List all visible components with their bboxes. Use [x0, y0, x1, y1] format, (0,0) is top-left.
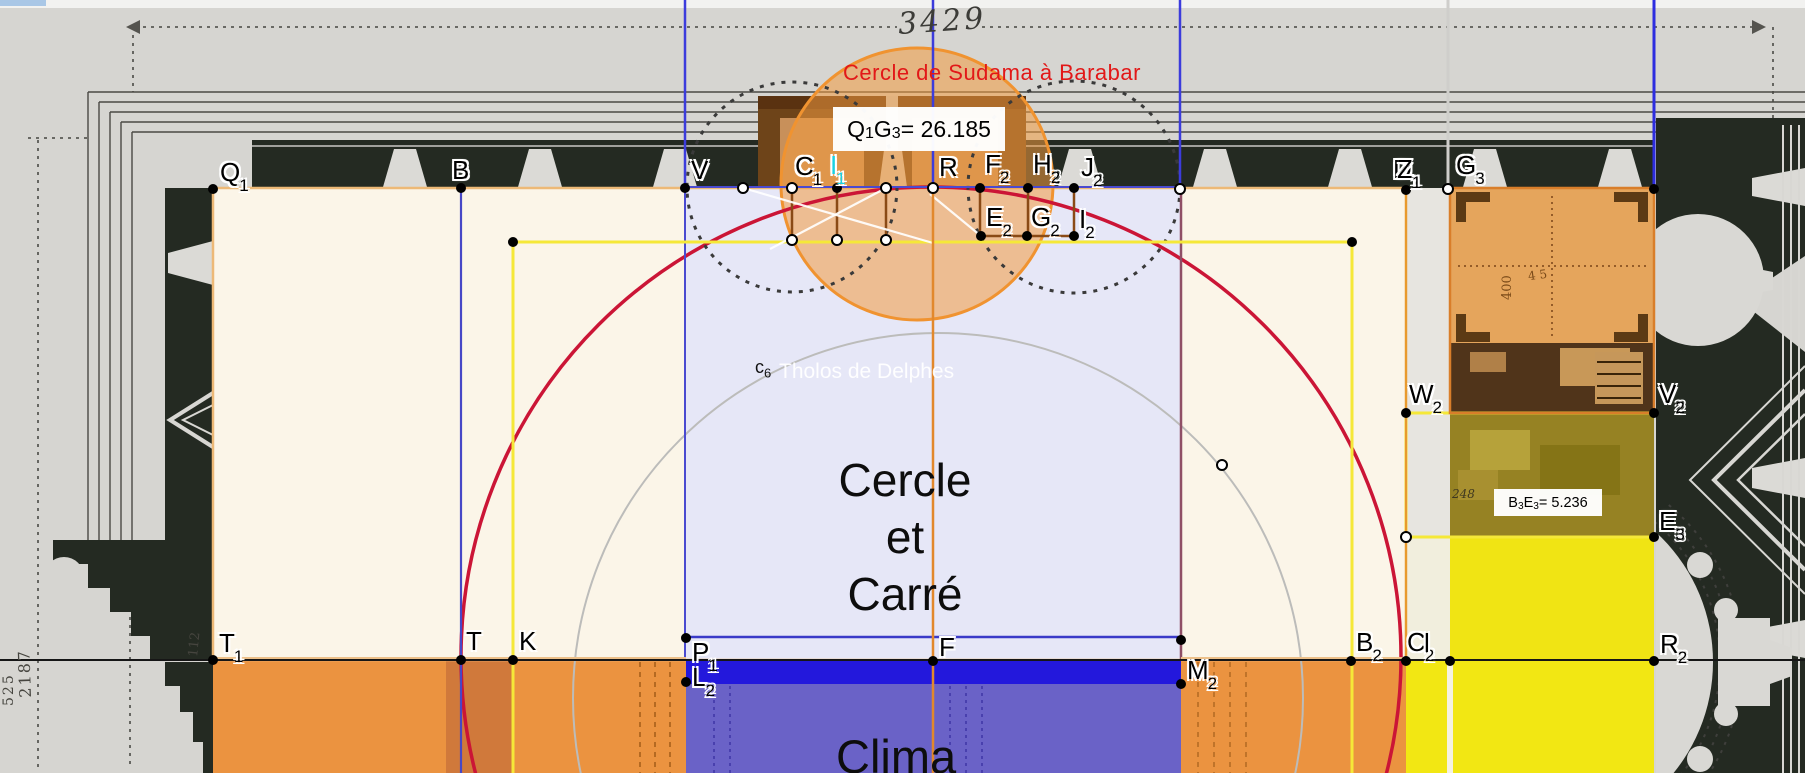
plan-dim-525: 525: [1, 673, 17, 706]
point-y837[interactable]: [831, 234, 843, 246]
point-label-C1: C1: [795, 153, 823, 184]
point-label-V: V: [691, 157, 708, 183]
point-label-I2: I2: [1079, 206, 1096, 237]
plan-dim-3429: 3429: [897, 1, 988, 42]
point-E3[interactable]: [1649, 532, 1659, 542]
point-F[interactable]: [928, 656, 938, 666]
point-label-B: B: [452, 157, 469, 183]
measurement-q1g3-box[interactable]: Q1G3 = 26.185: [833, 107, 1005, 151]
point-d1450[interactable]: [1445, 656, 1455, 666]
point-label-F: F: [939, 634, 955, 660]
point-H2[interactable]: [1023, 183, 1033, 193]
center-square-caption: Cercle et Carré: [770, 452, 1040, 623]
point-oc6[interactable]: [1216, 459, 1228, 471]
plan-dim-45: 4 5: [1527, 267, 1548, 284]
point-P1[interactable]: [681, 633, 691, 643]
point-label-R: R: [939, 154, 958, 180]
point-label-I1: I1: [830, 152, 847, 183]
point-M2[interactable]: [1176, 679, 1186, 689]
plan-dim-248: 248: [1452, 487, 1475, 501]
point-o1406[interactable]: [1400, 531, 1412, 543]
point-Q1[interactable]: [208, 184, 218, 194]
point-label-L2: L2: [692, 664, 716, 695]
sudama-circle-title: Cercle de Sudama à Barabar: [843, 60, 1141, 86]
point-p1180[interactable]: [1174, 183, 1186, 195]
point-label-E3: E3: [1659, 508, 1686, 539]
point-J2[interactable]: [1069, 183, 1079, 193]
point-label-Q1: Q1: [220, 159, 250, 190]
point-label-T1: T1: [219, 630, 244, 661]
point-G3[interactable]: [1442, 183, 1454, 195]
yellow-bottom-right[interactable]: [1406, 660, 1654, 773]
point-F2[interactable]: [975, 183, 985, 193]
browser-artifact: [0, 0, 46, 6]
point-label-F2: F2: [985, 151, 1010, 182]
point-m1181[interactable]: [1176, 635, 1186, 645]
point-label-R2: R2: [1660, 631, 1688, 662]
point-I2[interactable]: [1069, 231, 1079, 241]
point-p743[interactable]: [737, 182, 749, 194]
point-y886[interactable]: [880, 234, 892, 246]
point-label-J2: J2: [1081, 154, 1103, 185]
point-E2[interactable]: [976, 231, 986, 241]
point-label-K: K: [519, 628, 536, 654]
point-label-E2: E2: [986, 204, 1013, 235]
point-V[interactable]: [680, 183, 690, 193]
point-yTL[interactable]: [508, 237, 518, 247]
point-label-C2: C2: [1407, 629, 1435, 660]
plan-dim-112: 112: [186, 631, 204, 657]
point-label-M2: M2: [1187, 657, 1218, 688]
point-T1[interactable]: [208, 655, 218, 665]
point-K[interactable]: [508, 655, 518, 665]
plan-dim-400: 400: [1500, 275, 1515, 300]
point-T[interactable]: [456, 655, 466, 665]
measurement-b3e3-box[interactable]: B3E3 = 5.236: [1494, 489, 1602, 516]
point-c1654[interactable]: [1649, 184, 1659, 194]
point-R2[interactable]: [1649, 656, 1659, 666]
point-label-B2: B2: [1356, 629, 1383, 660]
plan-dim-2187: 2187: [14, 649, 35, 698]
geometry-canvas[interactable]: Cercle de Sudama à Barabar Q1G3 = 26.185…: [0, 0, 1805, 773]
point-p886[interactable]: [880, 182, 892, 194]
point-label-G2: G2: [1031, 204, 1061, 235]
clima-caption: Clima: [836, 729, 956, 773]
point-L2[interactable]: [681, 677, 691, 687]
point-label-C2i: l: [1424, 630, 1430, 656]
point-V2[interactable]: [1649, 408, 1659, 418]
point-label-G3: G3: [1456, 152, 1486, 183]
point-label-T: T: [466, 628, 482, 654]
point-label-Z1: Z1: [1397, 156, 1422, 187]
point-yTR[interactable]: [1347, 237, 1357, 247]
point-y792[interactable]: [786, 234, 798, 246]
point-label-H2: H2: [1033, 151, 1061, 182]
point-R[interactable]: [927, 182, 939, 194]
c6-label: c6: [755, 357, 771, 381]
point-label-W2: W2: [1409, 381, 1443, 412]
point-label-V2: V2: [1659, 381, 1686, 412]
point-B2[interactable]: [1346, 656, 1356, 666]
tholos-label: Tholos de Delphes: [779, 360, 954, 384]
